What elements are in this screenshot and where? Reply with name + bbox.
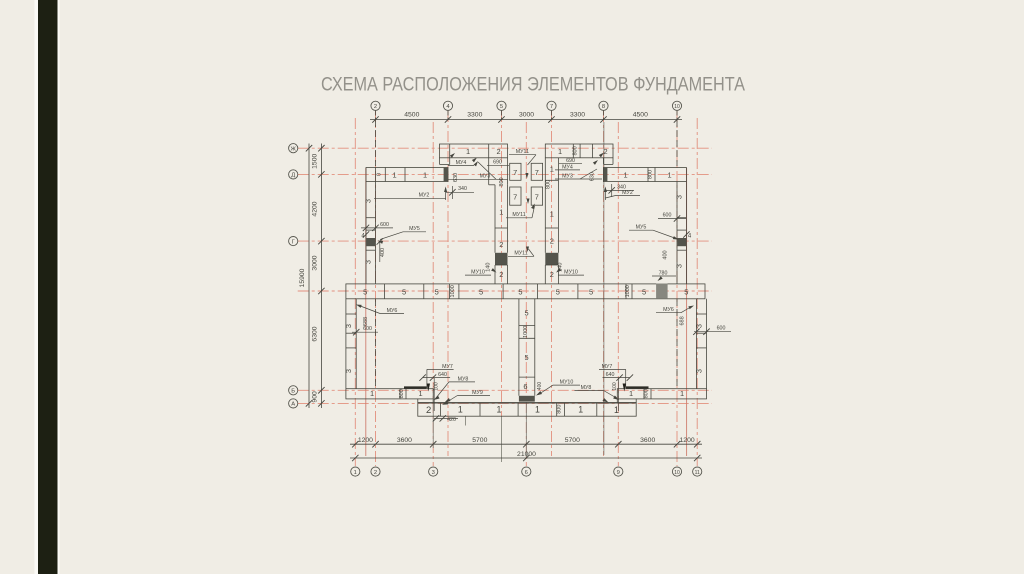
svg-text:1: 1 bbox=[578, 404, 583, 414]
svg-text:1: 1 bbox=[558, 147, 562, 156]
svg-text:МУ3: МУ3 bbox=[480, 174, 491, 180]
svg-text:340: 340 bbox=[458, 186, 467, 192]
svg-text:800: 800 bbox=[557, 405, 563, 414]
svg-text:А: А bbox=[291, 402, 295, 408]
svg-text:МУ9: МУ9 bbox=[472, 390, 483, 396]
svg-text:МУ10: МУ10 bbox=[560, 380, 574, 386]
svg-text:МУ4: МУ4 bbox=[562, 164, 573, 170]
svg-text:МУ4: МУ4 bbox=[456, 160, 467, 166]
svg-text:10: 10 bbox=[674, 470, 680, 476]
svg-text:Д: Д bbox=[291, 173, 295, 179]
svg-text:690: 690 bbox=[493, 160, 502, 166]
svg-text:800: 800 bbox=[399, 389, 405, 398]
svg-text:7: 7 bbox=[535, 168, 539, 177]
svg-text:600: 600 bbox=[380, 222, 389, 228]
svg-text:5: 5 bbox=[642, 288, 646, 297]
svg-text:МУ7: МУ7 bbox=[602, 364, 613, 370]
svg-text:5: 5 bbox=[589, 288, 593, 297]
svg-text:6: 6 bbox=[523, 382, 527, 391]
svg-text:1: 1 bbox=[680, 389, 684, 398]
svg-text:3: 3 bbox=[364, 199, 373, 203]
svg-text:3: 3 bbox=[694, 324, 703, 328]
svg-text:2: 2 bbox=[499, 270, 503, 279]
svg-text:400: 400 bbox=[380, 248, 386, 257]
svg-text:Ж: Ж bbox=[291, 146, 297, 152]
svg-text:3600: 3600 bbox=[640, 437, 655, 444]
svg-text:МУ3: МУ3 bbox=[562, 173, 573, 179]
svg-text:МУ11: МУ11 bbox=[516, 149, 529, 155]
svg-text:640: 640 bbox=[438, 372, 447, 378]
svg-text:СХЕМА РАСПОЛОЖЕНИЯ ЭЛЕМЕНТОВ Ф: СХЕМА РАСПОЛОЖЕНИЯ ЭЛЕМЕНТОВ ФУНДАМЕНТА bbox=[321, 74, 745, 96]
svg-text:5: 5 bbox=[518, 288, 522, 297]
svg-text:МУ11: МУ11 bbox=[514, 251, 527, 257]
svg-text:400: 400 bbox=[663, 250, 669, 259]
svg-text:1: 1 bbox=[497, 404, 502, 414]
svg-text:5: 5 bbox=[363, 288, 367, 297]
svg-text:630: 630 bbox=[453, 173, 459, 182]
svg-text:10: 10 bbox=[674, 104, 680, 110]
svg-text:140: 140 bbox=[558, 263, 564, 272]
svg-text:800: 800 bbox=[499, 177, 505, 186]
svg-text:1: 1 bbox=[667, 171, 671, 180]
svg-text:1000: 1000 bbox=[625, 285, 631, 297]
svg-text:5: 5 bbox=[525, 309, 529, 318]
svg-text:5: 5 bbox=[402, 288, 406, 297]
svg-text:5: 5 bbox=[435, 288, 439, 297]
svg-text:5: 5 bbox=[556, 288, 560, 297]
svg-text:1: 1 bbox=[629, 389, 633, 398]
svg-text:5: 5 bbox=[684, 288, 688, 297]
svg-text:5700: 5700 bbox=[472, 437, 487, 444]
svg-text:3: 3 bbox=[694, 369, 703, 373]
svg-text:7: 7 bbox=[550, 104, 553, 110]
svg-text:2: 2 bbox=[374, 104, 377, 110]
svg-text:1000: 1000 bbox=[523, 326, 529, 338]
svg-text:5: 5 bbox=[500, 104, 503, 110]
svg-text:2: 2 bbox=[550, 270, 554, 279]
svg-text:2: 2 bbox=[426, 405, 431, 416]
svg-text:3300: 3300 bbox=[467, 112, 482, 119]
svg-text:3: 3 bbox=[344, 369, 353, 373]
svg-text:3600: 3600 bbox=[397, 437, 412, 444]
svg-text:420: 420 bbox=[447, 417, 456, 423]
svg-text:100: 100 bbox=[434, 382, 440, 391]
svg-text:МУ10: МУ10 bbox=[564, 270, 578, 276]
svg-text:1200: 1200 bbox=[680, 437, 695, 444]
svg-text:6: 6 bbox=[525, 470, 528, 476]
svg-text:МУ5: МУ5 bbox=[636, 225, 647, 231]
svg-text:140: 140 bbox=[486, 263, 492, 272]
svg-text:Б: Б bbox=[291, 389, 295, 395]
svg-text:21000: 21000 bbox=[517, 451, 536, 458]
svg-text:630: 630 bbox=[589, 172, 595, 181]
svg-text:600: 600 bbox=[363, 326, 372, 332]
svg-text:800: 800 bbox=[546, 180, 552, 189]
svg-text:1: 1 bbox=[458, 404, 463, 414]
svg-text:МУ5: МУ5 bbox=[409, 226, 420, 232]
svg-text:100: 100 bbox=[612, 382, 618, 391]
svg-text:1000: 1000 bbox=[450, 285, 456, 297]
svg-text:1: 1 bbox=[550, 210, 554, 219]
svg-text:800: 800 bbox=[573, 146, 579, 155]
svg-text:1: 1 bbox=[392, 171, 396, 180]
svg-text:640: 640 bbox=[606, 372, 615, 378]
svg-text:900: 900 bbox=[312, 391, 319, 403]
svg-text:МУ8: МУ8 bbox=[458, 376, 469, 382]
svg-text:688: 688 bbox=[680, 316, 686, 325]
svg-text:11: 11 bbox=[695, 470, 700, 476]
svg-text:7: 7 bbox=[513, 192, 517, 201]
svg-text:1: 1 bbox=[499, 208, 503, 217]
svg-text:3: 3 bbox=[432, 470, 435, 476]
svg-text:4500: 4500 bbox=[404, 112, 419, 119]
svg-text:2: 2 bbox=[603, 147, 607, 156]
svg-text:8: 8 bbox=[602, 104, 605, 110]
svg-text:МУ10: МУ10 bbox=[471, 270, 485, 276]
svg-text:600: 600 bbox=[717, 326, 726, 332]
svg-text:3: 3 bbox=[364, 260, 373, 264]
svg-text:МУ2: МУ2 bbox=[622, 190, 633, 196]
svg-text:1: 1 bbox=[623, 171, 627, 180]
svg-text:3000: 3000 bbox=[312, 255, 319, 270]
svg-text:780: 780 bbox=[659, 270, 668, 276]
svg-text:2: 2 bbox=[499, 240, 503, 249]
svg-text:2: 2 bbox=[550, 237, 554, 246]
svg-text:1200: 1200 bbox=[358, 437, 373, 444]
svg-text:15900: 15900 bbox=[299, 268, 306, 287]
svg-text:400: 400 bbox=[537, 382, 543, 391]
svg-text:5: 5 bbox=[525, 353, 529, 362]
svg-text:4200: 4200 bbox=[312, 201, 319, 216]
svg-text:7: 7 bbox=[513, 168, 517, 177]
svg-text:690: 690 bbox=[566, 158, 575, 164]
svg-text:1500: 1500 bbox=[312, 154, 319, 169]
svg-text:1: 1 bbox=[535, 404, 540, 414]
svg-text:9: 9 bbox=[617, 470, 620, 476]
svg-text:МУ11: МУ11 bbox=[512, 212, 525, 218]
svg-text:5: 5 bbox=[479, 288, 483, 297]
svg-text:0: 0 bbox=[376, 173, 382, 176]
svg-text:4500: 4500 bbox=[633, 112, 648, 119]
svg-text:3: 3 bbox=[675, 264, 684, 268]
svg-text:800: 800 bbox=[648, 170, 654, 179]
svg-text:2: 2 bbox=[374, 470, 377, 476]
svg-text:7: 7 bbox=[535, 192, 539, 201]
svg-text:1: 1 bbox=[550, 165, 554, 174]
svg-text:2: 2 bbox=[496, 147, 500, 156]
svg-text:1: 1 bbox=[466, 147, 470, 156]
svg-text:МУ2: МУ2 bbox=[419, 193, 430, 199]
svg-text:3000: 3000 bbox=[519, 112, 534, 119]
svg-text:6300: 6300 bbox=[312, 326, 319, 341]
svg-text:600: 600 bbox=[663, 212, 672, 218]
svg-text:1: 1 bbox=[423, 171, 427, 180]
svg-text:МУ6: МУ6 bbox=[387, 308, 398, 314]
svg-text:3: 3 bbox=[344, 324, 353, 328]
svg-text:3: 3 bbox=[675, 195, 684, 199]
svg-text:МУ6: МУ6 bbox=[663, 307, 674, 313]
svg-text:МУ7: МУ7 bbox=[442, 364, 453, 370]
svg-text:5700: 5700 bbox=[565, 437, 580, 444]
svg-text:МУ8: МУ8 bbox=[581, 385, 592, 391]
svg-text:3300: 3300 bbox=[570, 112, 585, 119]
svg-text:1: 1 bbox=[418, 389, 422, 398]
svg-text:1: 1 bbox=[354, 470, 357, 476]
svg-text:800: 800 bbox=[644, 389, 650, 398]
svg-text:688: 688 bbox=[363, 317, 369, 326]
svg-text:1: 1 bbox=[370, 389, 374, 398]
